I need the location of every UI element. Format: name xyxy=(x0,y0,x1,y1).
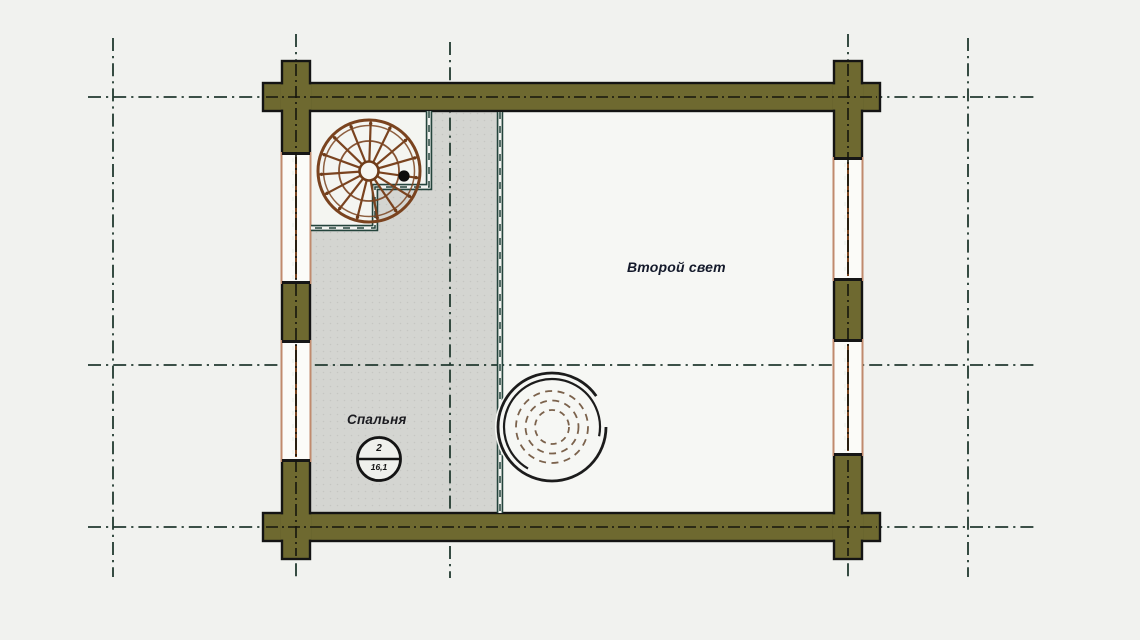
room-area: 16,1 xyxy=(357,462,401,472)
stair-post-dot xyxy=(398,170,409,181)
open-space-label: Второй свет xyxy=(627,259,726,275)
stair-newel-core xyxy=(360,162,379,181)
floor-plan-canvas: Второй свет Спальня 2 16,1 xyxy=(0,0,1140,640)
floor-plan-drawing xyxy=(0,0,1140,640)
room-number: 2 xyxy=(357,443,401,454)
bedroom-label: Спальня xyxy=(347,412,407,427)
